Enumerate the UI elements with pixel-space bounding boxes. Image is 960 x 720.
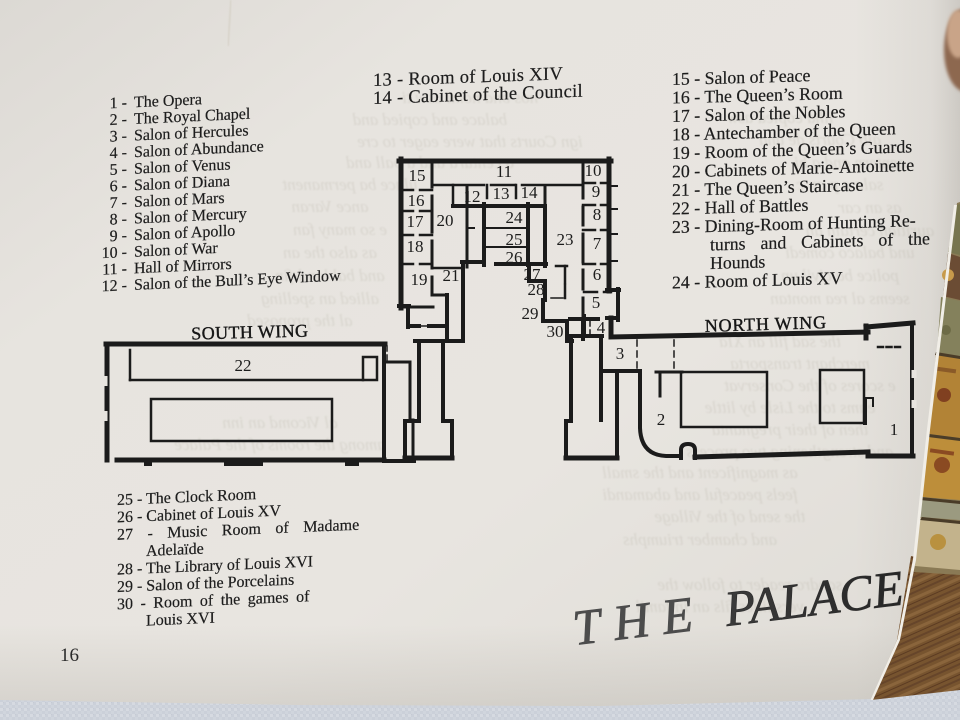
svg-text:2: 2 (657, 410, 666, 429)
svg-text:12: 12 (464, 187, 481, 206)
svg-text:3 -: 3 - (110, 128, 127, 146)
svg-text:1: 1 (890, 420, 899, 439)
svg-text:19: 19 (411, 270, 428, 289)
svg-text:17: 17 (407, 212, 425, 231)
svg-text:ulace ba permanent: ulace ba permanent (281, 175, 417, 194)
svg-text:as also the an: as also the an (283, 243, 377, 262)
svg-text:29: 29 (522, 304, 539, 323)
svg-text:10: 10 (585, 161, 602, 180)
svg-text:6 -: 6 - (110, 178, 127, 196)
svg-text:1 -: 1 - (110, 95, 127, 113)
svg-text:13: 13 (493, 184, 510, 203)
svg-text:allied an spelling: allied an spelling (261, 289, 379, 308)
svg-text:seems al rea montan: seems al rea montan (770, 289, 910, 308)
svg-text:18: 18 (407, 237, 424, 256)
svg-text:NORTH WING: NORTH WING (704, 312, 827, 336)
svg-text:ance Varan: ance Varan (292, 197, 369, 216)
svg-text:24: 24 (506, 208, 524, 227)
svg-text:SOUTH WING: SOUTH WING (191, 320, 309, 343)
svg-text:eams to the Lisle by little: eams to the Lisle by little (704, 398, 875, 417)
svg-text:Adelaïde: Adelaïde (146, 541, 204, 560)
svg-text:7 -: 7 - (110, 194, 127, 212)
svg-text:21: 21 (443, 266, 460, 285)
svg-text:e scores of the Conservat: e scores of the Conservat (723, 376, 896, 395)
svg-text:3: 3 (616, 344, 625, 363)
svg-text:28: 28 (528, 280, 545, 299)
svg-text:6: 6 (593, 265, 602, 284)
svg-text:26: 26 (506, 248, 523, 267)
svg-text:25: 25 (506, 230, 523, 249)
svg-text:e so many fan: e so many fan (293, 220, 387, 239)
svg-text:16: 16 (60, 645, 79, 666)
svg-text:as magnificent and the small: as magnificent and the small (602, 463, 798, 482)
svg-text:11 -: 11 - (102, 261, 127, 279)
svg-text:12 -: 12 - (102, 277, 127, 295)
svg-text:30: 30 (547, 322, 564, 341)
svg-text:the send of the Village: the send of the Village (654, 507, 805, 526)
svg-text:4: 4 (597, 318, 606, 337)
svg-text:feels peaceful and abamandi: feels peaceful and abamandi (602, 485, 797, 504)
svg-text:9 -: 9 - (110, 227, 127, 245)
svg-text:among the rooms of the Palace: among the rooms of the Palace (174, 435, 386, 454)
svg-text:and chamber triumphs: and chamber triumphs (623, 530, 777, 549)
svg-text:14: 14 (521, 183, 539, 202)
svg-text:Louis XVI: Louis XVI (146, 610, 215, 630)
svg-text:23: 23 (557, 230, 574, 249)
svg-text:4 -: 4 - (110, 144, 127, 162)
svg-text:5 -: 5 - (110, 161, 127, 179)
svg-text:15: 15 (409, 166, 426, 185)
svg-text:al Vicomd an inn: al Vicomd an inn (222, 413, 337, 432)
svg-text:8 -: 8 - (110, 211, 127, 229)
svg-text:ign Courts that were eager to: ign Courts that were eager to cre (357, 132, 583, 151)
svg-text:20: 20 (437, 211, 454, 230)
svg-text:2 -: 2 - (110, 111, 127, 129)
svg-text:9: 9 (592, 182, 601, 201)
svg-text:22: 22 (235, 356, 252, 375)
svg-text:5: 5 (592, 293, 601, 312)
svg-text:11: 11 (496, 162, 512, 181)
svg-text:balace and copied and: balace and copied and (352, 110, 507, 129)
svg-text:16: 16 (408, 191, 425, 210)
svg-text:10 -: 10 - (102, 244, 127, 262)
svg-text:7: 7 (593, 234, 602, 253)
svg-text:8: 8 (593, 205, 602, 224)
